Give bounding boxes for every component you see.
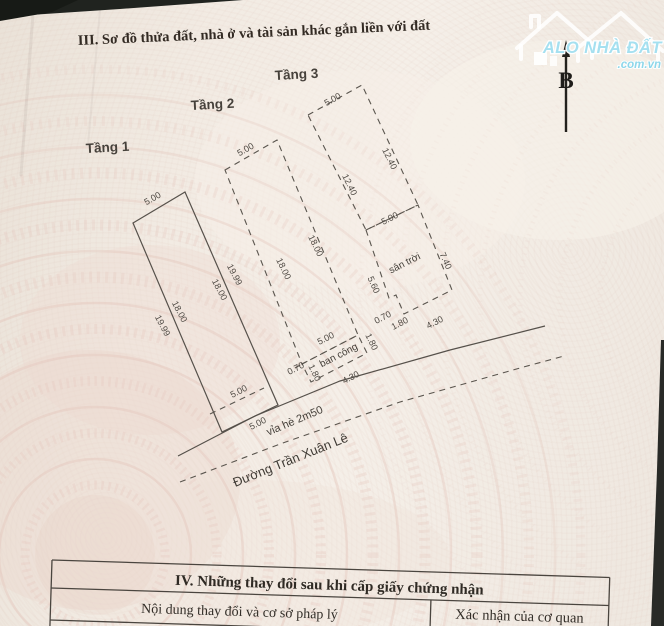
north-arrow-label: B bbox=[558, 68, 573, 93]
logo-name: ALO NHÀ ĐẤT bbox=[542, 38, 664, 57]
ban-cong-dim-right: 1.80 bbox=[363, 332, 380, 352]
tang1-label: Tầng 1 bbox=[85, 139, 130, 156]
logo-house-door bbox=[550, 56, 557, 66]
logo-domain: .com.vn bbox=[618, 59, 661, 71]
tang3-label: Tầng 3 bbox=[274, 66, 319, 83]
ban-cong-dim-bottom: 4.30 bbox=[341, 369, 361, 386]
tang2-label: Tầng 2 bbox=[190, 96, 234, 113]
section3-title: III. Sơ đồ thửa đất, nhà ở và tài sản kh… bbox=[77, 18, 430, 49]
certificate-photo: III. Sơ đồ thửa đất, nhà ở và tài sản kh… bbox=[0, 0, 664, 626]
diagram-canvas: III. Sơ đồ thửa đất, nhà ở và tài sản kh… bbox=[0, 0, 664, 626]
section4-col2-header-line1: Xác nhận của cơ quan bbox=[455, 607, 585, 626]
